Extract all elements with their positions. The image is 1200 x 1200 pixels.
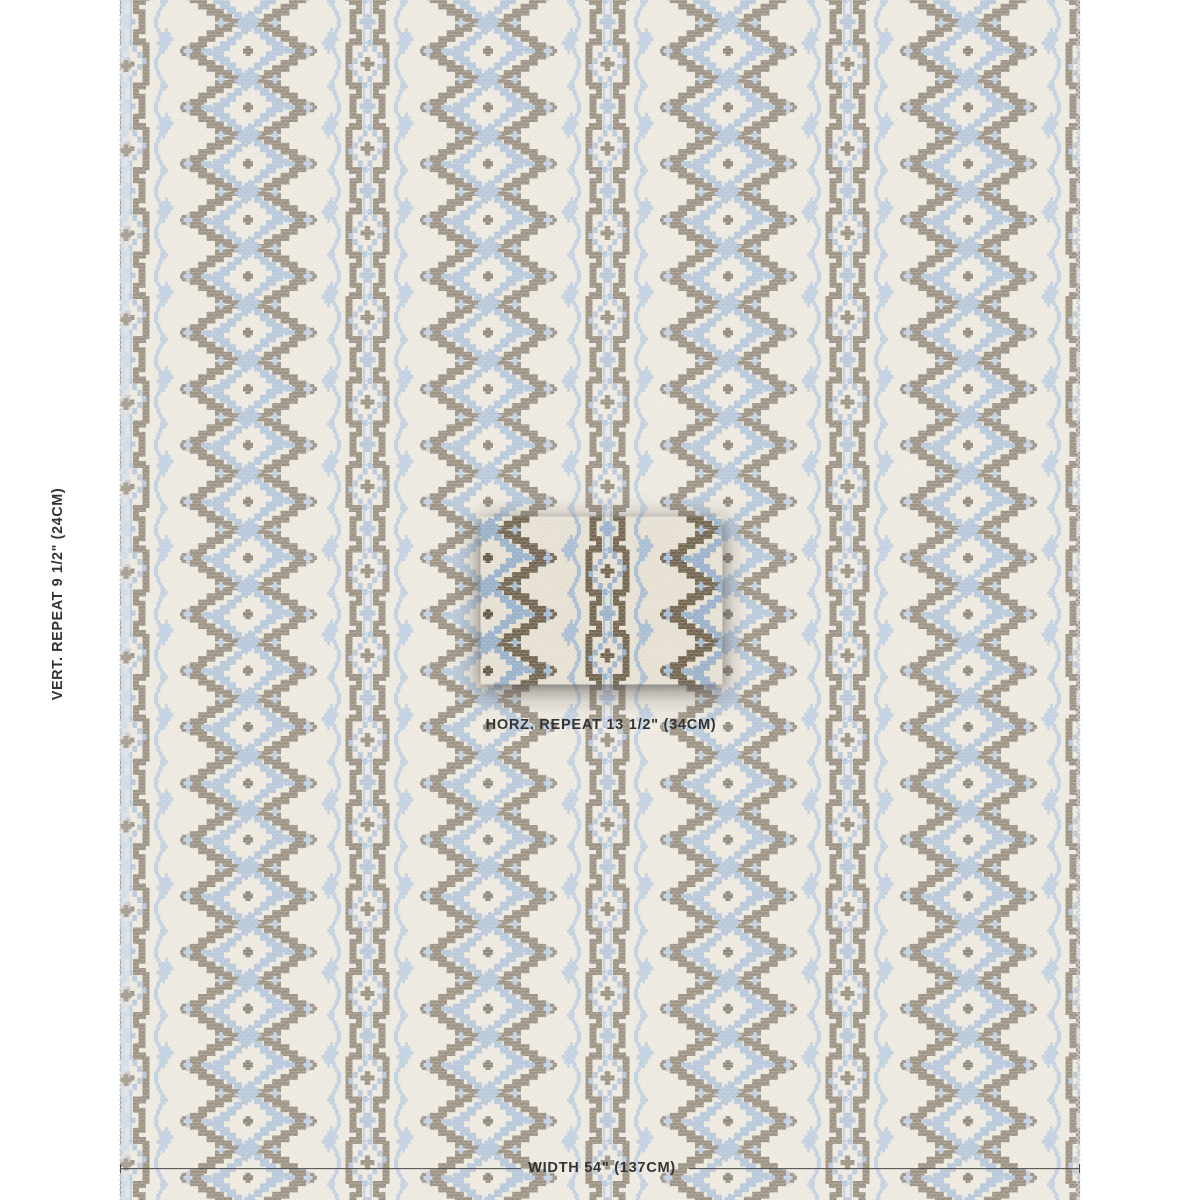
svg-text:HORZ. REPEAT 13 1/2" (34CM): HORZ. REPEAT 13 1/2" (34CM) <box>486 717 717 733</box>
svg-text:VERT. REPEAT 9 1/2" (24CM): VERT. REPEAT 9 1/2" (24CM) <box>50 488 66 700</box>
svg-text:WIDTH 54" (137CM): WIDTH 54" (137CM) <box>528 1160 676 1176</box>
